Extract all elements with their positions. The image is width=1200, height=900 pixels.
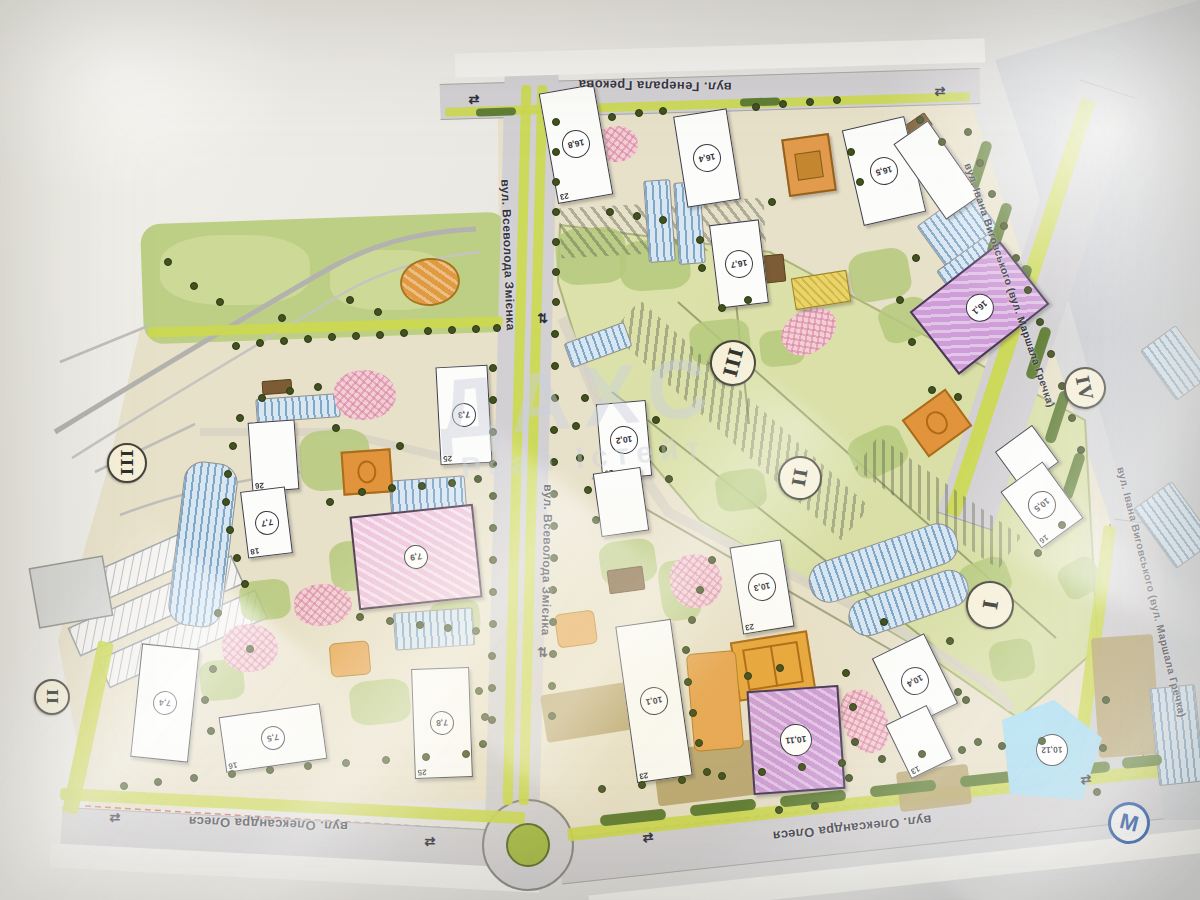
building-number-label: 7,4: [152, 690, 178, 716]
tree: [266, 766, 274, 774]
building-number-label: 7,8: [429, 710, 455, 736]
tree: [462, 750, 470, 758]
two-way-arrow-marking: ⇄: [535, 312, 550, 323]
tree: [190, 282, 198, 290]
tree: [938, 138, 946, 146]
building-floors-label: 18: [250, 546, 260, 556]
tree: [849, 703, 857, 711]
tree: [374, 308, 382, 316]
tree: [286, 387, 294, 395]
tree: [695, 739, 703, 747]
tree: [851, 738, 859, 746]
tree: [472, 627, 480, 635]
tree: [608, 113, 616, 121]
court-marking: [357, 460, 378, 484]
tree: [698, 264, 706, 272]
building-floors-label: 16: [1037, 533, 1049, 546]
tree: [548, 682, 556, 690]
tree: [488, 652, 496, 660]
tree: [224, 470, 232, 478]
tree: [845, 774, 853, 782]
tree: [918, 750, 926, 758]
tree: [659, 107, 667, 115]
tree: [878, 755, 886, 763]
tree: [552, 178, 560, 186]
tree: [633, 212, 641, 220]
building-floors-label: 25: [443, 454, 452, 463]
tree: [241, 580, 249, 588]
building: 10,11: [746, 685, 845, 795]
tree: [154, 778, 162, 786]
tree: [806, 98, 814, 106]
two-way-arrow-marking: ⇄: [468, 92, 479, 107]
tree: [652, 416, 660, 424]
building-floors-label: 23: [744, 622, 754, 632]
tree: [584, 486, 592, 494]
tree: [400, 329, 408, 337]
building: 7,718: [240, 487, 293, 559]
building: 7,4: [130, 643, 200, 762]
tree: [474, 475, 482, 483]
tree: [120, 782, 128, 790]
tree: [551, 330, 559, 338]
building: [781, 133, 837, 197]
tree: [833, 96, 841, 104]
section-numeral: II: [34, 679, 70, 715]
tree: [304, 335, 312, 343]
tree: [246, 645, 254, 653]
tree: [744, 672, 752, 680]
tree: [962, 696, 970, 704]
building-number-label: 10,5: [1022, 485, 1061, 524]
tree: [1077, 446, 1085, 454]
tree: [659, 216, 667, 224]
tree: [209, 665, 217, 673]
tree: [489, 620, 497, 628]
tree: [856, 178, 864, 186]
tree: [954, 688, 962, 696]
tree: [682, 646, 690, 654]
tree: [552, 208, 560, 216]
tree: [779, 100, 787, 108]
tree: [552, 118, 560, 126]
sport-court: [554, 609, 598, 648]
school-courtyard: [794, 150, 824, 180]
tree: [688, 616, 696, 624]
tree: [1068, 414, 1076, 422]
tree: [207, 727, 215, 735]
tree: [280, 337, 288, 345]
tree: [847, 148, 855, 156]
tree: [718, 772, 726, 780]
building: 7,325: [435, 365, 492, 466]
tree: [896, 296, 904, 304]
two-way-arrow-marking: ⇄: [535, 646, 550, 657]
tree: [229, 442, 237, 450]
tree: [768, 198, 776, 206]
tree: [998, 742, 1006, 750]
tree: [552, 268, 560, 276]
tree: [164, 258, 172, 266]
tree: [842, 669, 850, 677]
tree: [581, 394, 589, 402]
parking-lot: [393, 607, 475, 650]
tree: [976, 159, 984, 167]
tree: [974, 738, 982, 746]
tree: [422, 753, 430, 761]
building: [593, 467, 649, 537]
tree: [388, 484, 396, 492]
tree: [1012, 254, 1020, 262]
tree: [342, 759, 350, 767]
tree: [489, 588, 497, 596]
building-number-label: 7,7: [253, 509, 280, 536]
tree: [988, 190, 996, 198]
tree: [472, 325, 480, 333]
tree: [256, 339, 264, 347]
tree: [326, 498, 334, 506]
tree: [744, 296, 752, 304]
tree: [551, 394, 559, 402]
building-number-label: 16,8: [559, 127, 592, 160]
tree: [696, 236, 704, 244]
tree: [689, 709, 697, 717]
tree: [638, 781, 646, 789]
building: 7,825: [411, 667, 473, 779]
tree: [550, 426, 558, 434]
tree: [916, 116, 924, 124]
building-number-label: 7,9: [402, 543, 429, 570]
tree: [382, 756, 390, 764]
tree: [1047, 350, 1055, 358]
tree: [488, 716, 496, 724]
tree: [1000, 222, 1008, 230]
two-way-arrow-marking: ⇄: [642, 830, 654, 846]
tree: [1024, 286, 1032, 294]
tree: [416, 621, 424, 629]
tree: [576, 454, 584, 462]
roundabout-island: [506, 823, 550, 867]
section-numeral: III: [107, 443, 147, 483]
sport-court: [341, 448, 394, 495]
tree: [606, 208, 614, 216]
building: 26: [248, 419, 300, 492]
tree: [304, 762, 312, 770]
street-name-label: вул. Генерала Грекова: [578, 77, 732, 95]
tree: [708, 556, 716, 564]
service-building: [607, 566, 646, 595]
tree: [489, 396, 497, 404]
tree: [448, 326, 456, 334]
tree: [1036, 318, 1044, 326]
tree: [1099, 744, 1107, 752]
tree: [880, 618, 888, 626]
court-marking: [921, 407, 952, 439]
building-number-label: 10,4: [896, 662, 934, 700]
tree: [489, 492, 497, 500]
two-way-arrow-marking: ⇄: [1080, 772, 1092, 788]
tree: [550, 458, 558, 466]
tree: [376, 331, 384, 339]
tree: [958, 746, 966, 754]
tree: [233, 554, 241, 562]
tree: [479, 740, 487, 748]
tree: [758, 768, 766, 776]
building-number-label: 10,11: [778, 722, 813, 757]
tree: [356, 613, 364, 621]
tree: [928, 386, 936, 394]
tree: [493, 324, 501, 332]
tree: [592, 516, 600, 524]
tree: [216, 298, 224, 306]
building-number-label: 10,3: [746, 571, 779, 604]
building-floors-label: 25: [418, 768, 427, 777]
building-number-label: 16,7: [723, 248, 755, 280]
building-number-label: 16,1: [960, 288, 999, 327]
tree: [665, 475, 673, 483]
tree: [912, 254, 920, 262]
tree: [1038, 737, 1046, 745]
tree: [775, 806, 783, 814]
tree: [278, 314, 286, 322]
tree: [696, 586, 704, 594]
tree: [190, 774, 198, 782]
tree: [214, 609, 222, 617]
tree: [572, 422, 580, 430]
tree: [236, 414, 244, 422]
tree: [396, 442, 404, 450]
tree: [201, 696, 209, 704]
tree: [659, 445, 667, 453]
tree: [332, 424, 340, 432]
two-way-arrow-marking: ⇄: [109, 810, 120, 825]
tree: [598, 785, 606, 793]
tree: [838, 759, 846, 767]
building: 7,9: [349, 504, 482, 610]
tree: [489, 364, 497, 372]
building-number-label: 16,4: [691, 142, 724, 175]
two-way-arrow-marking: ⇄: [934, 84, 945, 99]
tree: [424, 327, 432, 335]
lawn: [348, 677, 412, 727]
tree: [776, 664, 784, 672]
building-number-label: 7,3: [451, 402, 477, 428]
tree: [798, 763, 806, 771]
sport-court: [329, 640, 372, 677]
tree: [1034, 549, 1042, 557]
tree: [752, 103, 760, 111]
hedge-row: [740, 97, 780, 106]
building-number-label: 10,2: [608, 424, 639, 455]
tree: [1058, 521, 1066, 529]
tree: [946, 637, 954, 645]
street-name-label: вул. Всеволода Змієнка: [539, 484, 556, 636]
tree: [475, 687, 483, 695]
tree: [678, 776, 686, 784]
tree: [352, 332, 360, 340]
building-number-label: 10,1: [638, 685, 670, 717]
tree: [551, 362, 559, 370]
tree: [489, 524, 497, 532]
tree: [703, 768, 711, 776]
tree: [444, 624, 452, 632]
tree: [552, 298, 560, 306]
tree: [488, 684, 496, 692]
building: 10,216: [596, 400, 652, 480]
tree: [314, 383, 322, 391]
tree: [1093, 788, 1101, 796]
tree: [228, 770, 236, 778]
tree: [358, 488, 366, 496]
tree: [386, 617, 394, 625]
site-plan-photo: ДАХС Реал Істейт М 267,7187,3257,97,47,5…: [0, 0, 1200, 900]
tree: [448, 479, 456, 487]
two-way-arrow-marking: ⇄: [424, 834, 435, 849]
tree: [718, 304, 726, 312]
hedge-row: [476, 107, 516, 116]
building-floors-label: 13: [909, 764, 921, 776]
tree: [552, 238, 560, 246]
tree: [635, 109, 643, 117]
tree: [552, 148, 560, 156]
tree: [811, 802, 819, 810]
tree: [418, 482, 426, 490]
sport-court: [686, 650, 744, 752]
tree: [548, 712, 556, 720]
building: 16,7: [709, 219, 769, 308]
metro-letter: М: [1117, 808, 1141, 838]
tree: [1102, 696, 1110, 704]
tree: [489, 428, 497, 436]
tree: [489, 556, 497, 564]
tree: [489, 460, 497, 468]
tree: [328, 333, 336, 341]
building-floors-label: 23: [639, 771, 649, 781]
building-number-label: 16,5: [867, 154, 901, 188]
tree: [346, 296, 354, 304]
tree: [232, 342, 240, 350]
tree: [908, 338, 916, 346]
building-floors-label: 23: [559, 191, 569, 201]
tree: [226, 526, 234, 534]
tree: [222, 498, 230, 506]
tree: [684, 678, 692, 686]
building-floors-label: 16: [228, 760, 238, 770]
building-number-label: 7,5: [259, 724, 287, 752]
tree: [954, 393, 962, 401]
tree: [258, 394, 266, 402]
tree: [964, 128, 972, 136]
